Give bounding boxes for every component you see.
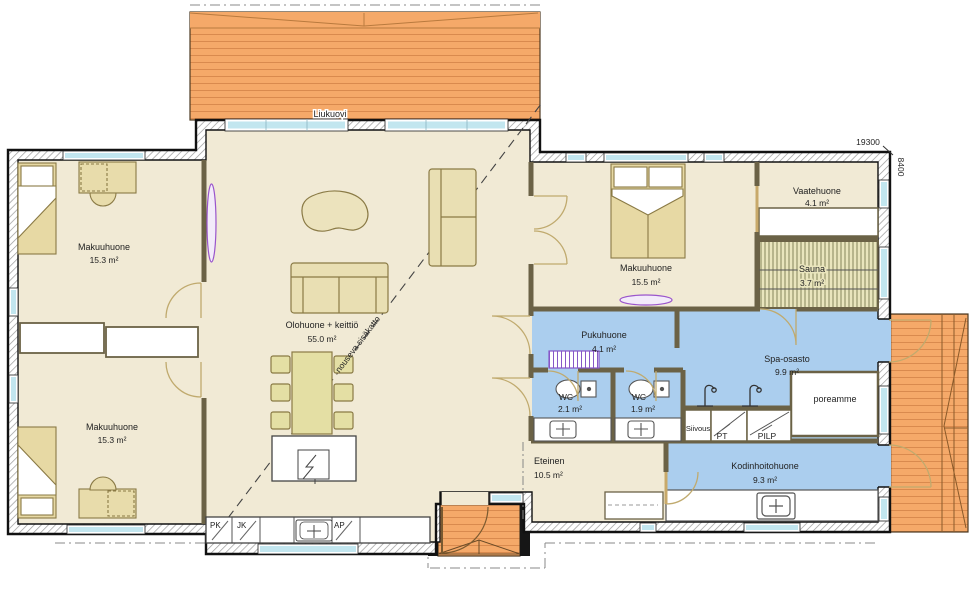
window xyxy=(566,153,586,162)
area-dressing-room: 4.1 m² xyxy=(592,344,616,354)
area-wc-left: 2.1 m² xyxy=(558,404,582,414)
area-walk-in-closet: 4.1 m² xyxy=(805,198,829,208)
closet-right xyxy=(106,327,198,357)
window xyxy=(744,523,800,532)
label-utility-room: Kodinhoitohuone xyxy=(731,461,799,471)
floor-plan-drawing: Liukuovi Makuuhuone 15.3 m² Makuuhuone 1… xyxy=(0,0,977,600)
coffee-table xyxy=(302,191,368,231)
label-sliding-door: Liukuovi xyxy=(313,109,346,119)
area-wc-right: 1.9 m² xyxy=(631,404,655,414)
pillow xyxy=(614,167,647,187)
label-fridge: JK xyxy=(237,521,247,530)
window xyxy=(879,180,889,208)
fireplace-icon xyxy=(207,184,216,262)
label-walk-in-closet: Vaatehuone xyxy=(793,186,841,196)
area-bedroom-top-left: 15.3 m² xyxy=(90,255,119,265)
label-freezer: PK xyxy=(210,521,221,530)
label-bedroom-top-left: Makuuhuone xyxy=(78,242,130,252)
label-dishwasher: AP xyxy=(334,521,345,530)
window xyxy=(879,247,889,299)
window xyxy=(640,523,656,532)
entrance-porch xyxy=(428,498,530,556)
area-sauna: 3.7 m² xyxy=(800,278,824,288)
area-utility-room: 9.3 m² xyxy=(753,475,777,485)
hall-bench xyxy=(605,492,663,519)
top-deck xyxy=(190,12,540,120)
label-wc-right: WC xyxy=(632,392,646,402)
utility-counter xyxy=(666,490,878,521)
label-sauna: Sauna xyxy=(799,264,825,274)
pillow xyxy=(21,166,53,186)
pillow xyxy=(649,167,682,187)
window xyxy=(9,288,18,316)
label-entrance-hall: Eteinen xyxy=(534,456,565,466)
dimension-width: 19300 xyxy=(856,137,880,147)
window xyxy=(704,153,724,162)
dining-table xyxy=(292,352,332,434)
cooktop-icon xyxy=(298,450,329,479)
area-entrance-hall: 10.5 m² xyxy=(534,470,563,480)
area-spa: 9.9 m² xyxy=(775,367,799,377)
window xyxy=(63,151,145,160)
pillow xyxy=(21,498,53,515)
area-bedroom-right: 15.5 m² xyxy=(632,277,661,287)
window xyxy=(490,493,523,503)
closet-left xyxy=(20,323,104,353)
floor-plan-page: Liukuovi Makuuhuone 15.3 m² Makuuhuone 1… xyxy=(0,0,977,600)
label-dressing-room: Pukuhuone xyxy=(581,330,627,340)
dimension-depth: 8400 xyxy=(896,158,906,177)
right-deck xyxy=(888,314,968,532)
window xyxy=(258,544,358,554)
label-bedroom-bottom-left: Makuuhuone xyxy=(86,422,138,432)
window xyxy=(67,525,145,534)
sliding-door xyxy=(225,119,348,131)
label-wc-left: WC xyxy=(559,392,573,402)
dresser xyxy=(79,489,136,518)
ceiling-lamp-icon xyxy=(620,295,672,305)
window xyxy=(9,375,18,403)
sauna-benches xyxy=(759,241,878,308)
area-bedroom-bottom-left: 15.3 m² xyxy=(98,435,127,445)
label-cleaning-closet: Siivous xyxy=(686,424,710,433)
label-spa: Spa-osasto xyxy=(764,354,810,364)
sliding-door xyxy=(385,119,508,131)
hall-closets xyxy=(20,323,198,357)
label-washing-tower: PT xyxy=(717,431,728,441)
window xyxy=(604,153,688,162)
label-whirlpool-tub: poreamme xyxy=(813,394,856,404)
closet-shelf xyxy=(759,208,878,236)
area-living-kitchen: 55.0 m² xyxy=(308,334,337,344)
window xyxy=(879,386,889,434)
label-bedroom-right: Makuuhuone xyxy=(620,263,672,273)
label-living-kitchen: Olohuone + keittiö xyxy=(286,320,359,330)
window xyxy=(879,497,889,521)
label-heat-pump: PILP xyxy=(758,431,777,441)
whirlpool-tub xyxy=(791,372,878,436)
